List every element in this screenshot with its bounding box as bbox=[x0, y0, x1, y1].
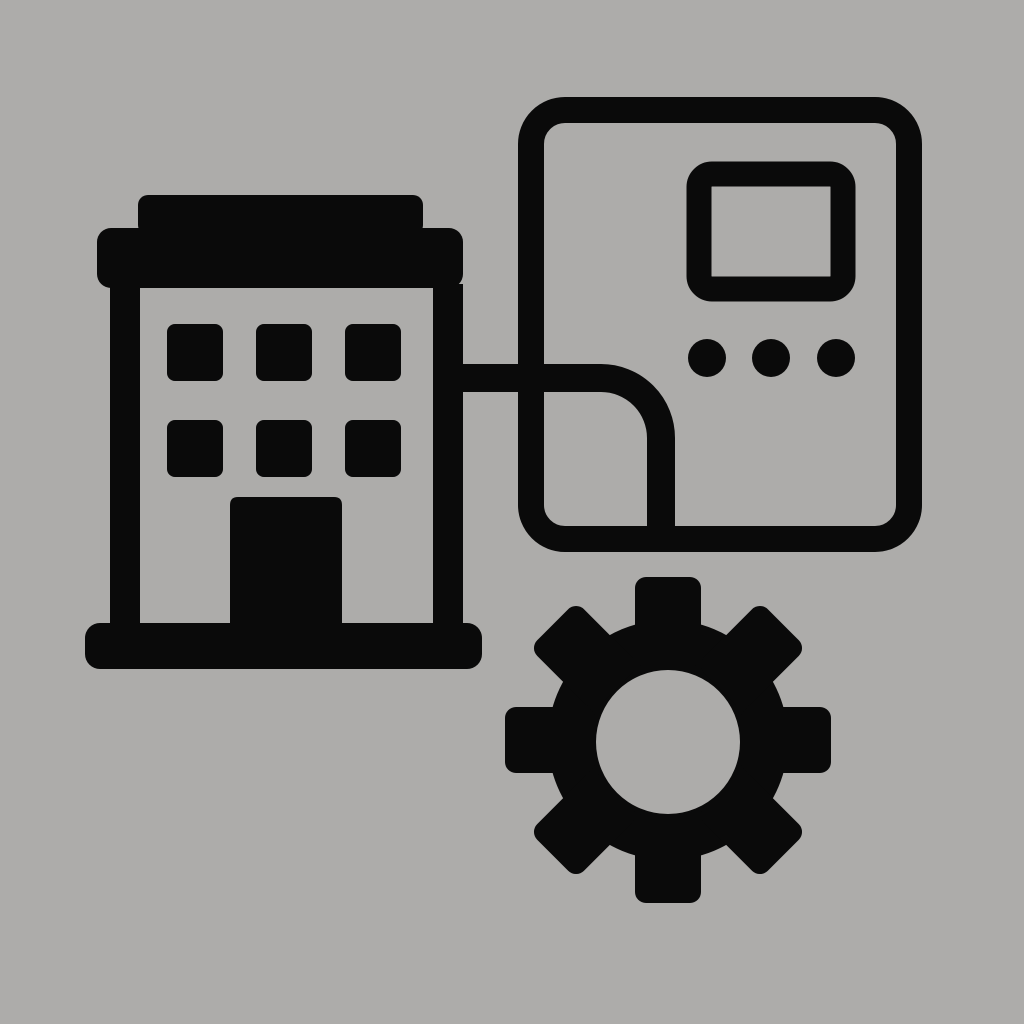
panel-button bbox=[688, 339, 726, 377]
icon-illustration bbox=[0, 0, 1024, 1024]
building-window bbox=[345, 420, 401, 477]
background bbox=[0, 0, 1024, 1024]
building-left-pillar bbox=[110, 284, 140, 632]
building-window bbox=[256, 420, 312, 477]
building-base bbox=[85, 623, 482, 669]
building-roof bbox=[97, 228, 463, 288]
panel-buttons bbox=[688, 339, 855, 377]
gear-hole bbox=[596, 670, 740, 814]
building-window bbox=[256, 324, 312, 381]
panel-button bbox=[817, 339, 855, 377]
gear-tooth bbox=[635, 577, 701, 667]
building-right-pillar bbox=[433, 284, 463, 632]
gear-tooth bbox=[635, 813, 701, 903]
scene-canvas bbox=[0, 0, 1024, 1024]
gear-tooth bbox=[741, 707, 831, 773]
gear-tooth bbox=[505, 707, 595, 773]
building-door bbox=[230, 497, 342, 630]
building-window bbox=[167, 420, 223, 477]
building-window bbox=[167, 324, 223, 381]
panel-button bbox=[752, 339, 790, 377]
gear-icon bbox=[505, 577, 831, 903]
building-window bbox=[345, 324, 401, 381]
